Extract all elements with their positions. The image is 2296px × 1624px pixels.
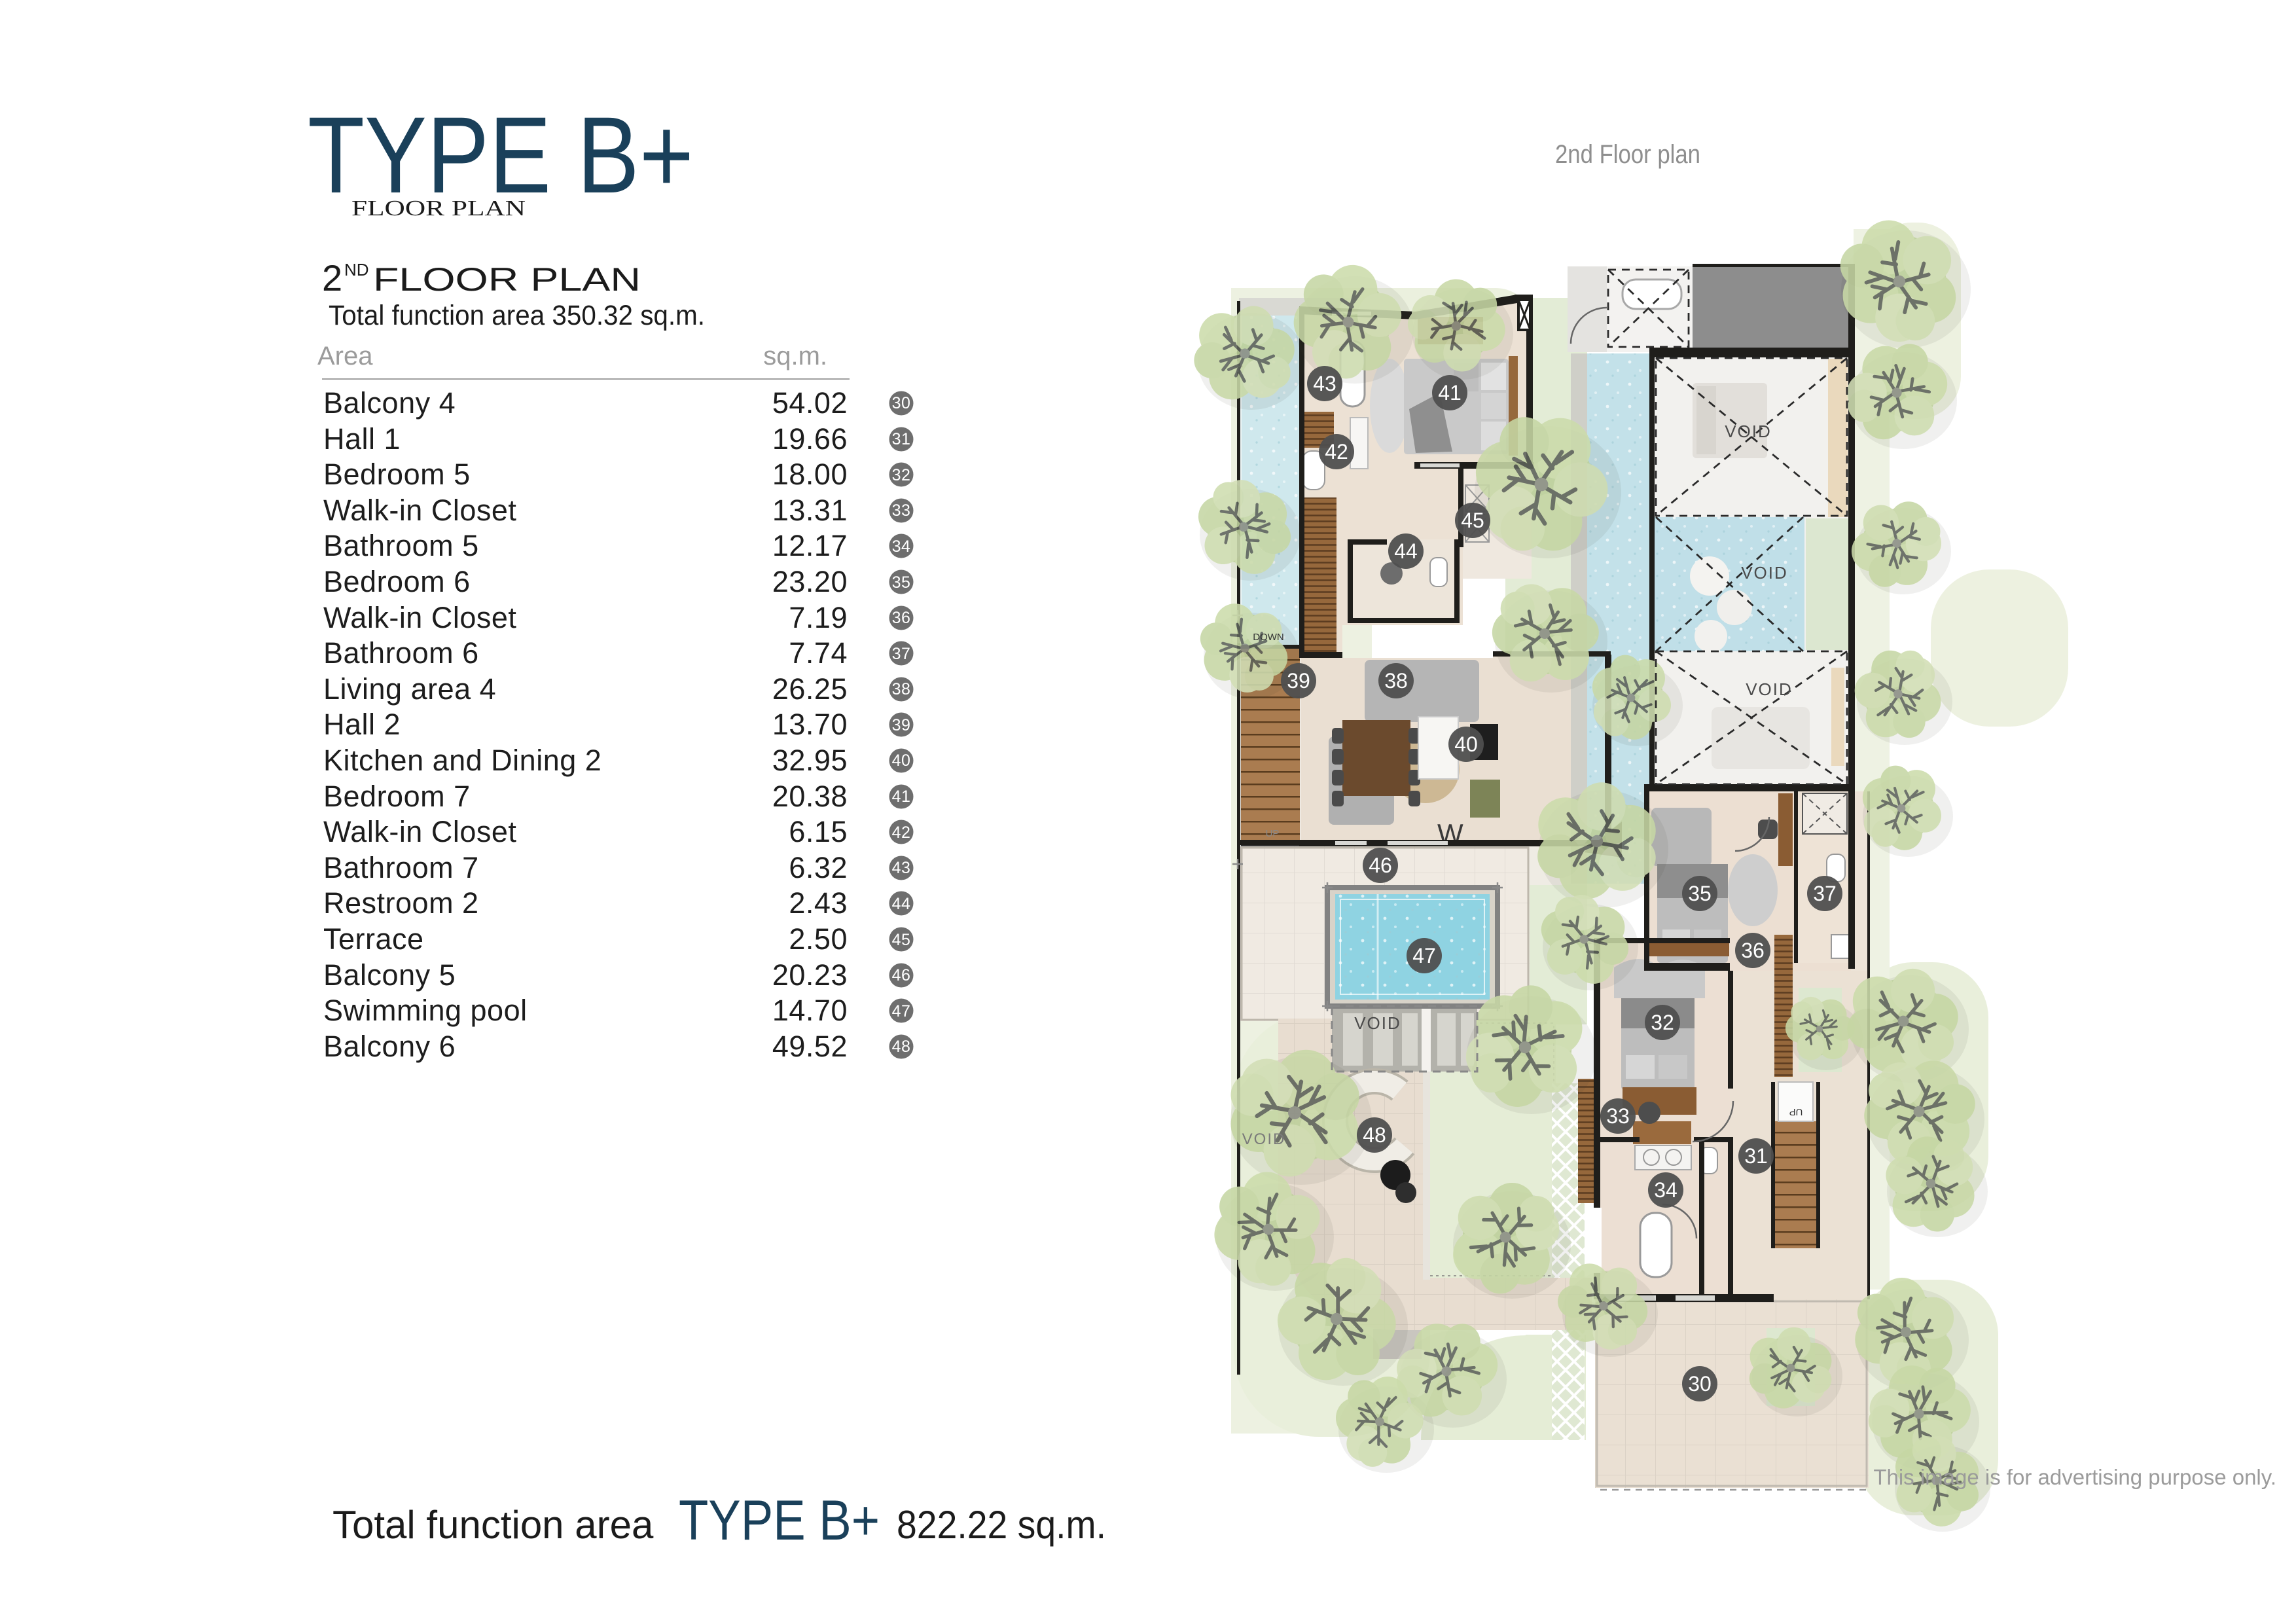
svg-text:37: 37 <box>1813 882 1837 905</box>
svg-text:32: 32 <box>1651 1011 1674 1034</box>
svg-text:20.23: 20.23 <box>772 958 848 992</box>
svg-text:30: 30 <box>1688 1372 1712 1396</box>
svg-text:Walk-in Closet: Walk-in Closet <box>323 815 516 848</box>
svg-text:45: 45 <box>1461 509 1484 532</box>
svg-text:30: 30 <box>892 394 911 412</box>
svg-text:33: 33 <box>1606 1104 1630 1128</box>
svg-text:Terrace: Terrace <box>323 922 424 956</box>
svg-text:14.70: 14.70 <box>772 994 848 1027</box>
svg-text:FLOOR PLAN: FLOOR PLAN <box>351 196 526 221</box>
svg-text:13.31: 13.31 <box>772 494 848 527</box>
svg-text:Area: Area <box>317 342 373 370</box>
svg-text:Bedroom 7: Bedroom 7 <box>323 780 471 813</box>
svg-text:UP: UP <box>1789 1106 1803 1117</box>
svg-text:VOID: VOID <box>1741 563 1788 583</box>
svg-text:VOID: VOID <box>1354 1013 1401 1033</box>
svg-text:19.66: 19.66 <box>772 422 848 456</box>
svg-text:47: 47 <box>892 1002 911 1020</box>
svg-text:Bathroom 7: Bathroom 7 <box>323 851 479 884</box>
svg-text:32.95: 32.95 <box>772 744 848 777</box>
svg-text:Total function area: Total function area <box>332 1503 654 1547</box>
svg-text:46: 46 <box>892 966 911 984</box>
svg-text:822.22 sq.m.: 822.22 sq.m. <box>897 1503 1106 1547</box>
svg-text:43: 43 <box>892 859 911 877</box>
svg-text:32: 32 <box>892 466 911 484</box>
svg-text:40: 40 <box>1454 732 1478 756</box>
svg-text:20.38: 20.38 <box>772 780 848 813</box>
svg-text:DOWN: DOWN <box>1253 632 1284 643</box>
svg-text:45: 45 <box>892 931 911 949</box>
svg-text:Bedroom 5: Bedroom 5 <box>323 458 471 491</box>
svg-text:2.50: 2.50 <box>789 922 848 956</box>
svg-text:TYPE B+: TYPE B+ <box>679 1489 880 1552</box>
svg-text:18.00: 18.00 <box>772 458 848 491</box>
svg-text:35: 35 <box>1688 882 1712 905</box>
svg-text:This image is for advertising: This image is for advertising purpose on… <box>1873 1465 2276 1489</box>
svg-text:2.43: 2.43 <box>789 886 848 920</box>
svg-text:VOID: VOID <box>1725 422 1772 441</box>
svg-text:VOID: VOID <box>1242 1130 1286 1148</box>
svg-text:Balcony 5: Balcony 5 <box>323 958 456 992</box>
svg-text:Bathroom 5: Bathroom 5 <box>323 529 479 562</box>
svg-text:Restroom 2: Restroom 2 <box>323 886 479 920</box>
svg-text:42: 42 <box>1325 440 1348 463</box>
svg-text:43: 43 <box>1313 372 1336 395</box>
svg-text:Walk-in Closet: Walk-in Closet <box>323 494 516 527</box>
svg-text:26.25: 26.25 <box>772 672 848 706</box>
svg-text:34: 34 <box>1654 1178 1677 1202</box>
svg-text:35: 35 <box>892 573 911 592</box>
svg-text:7.19: 7.19 <box>789 601 848 634</box>
svg-text:Balcony 4: Balcony 4 <box>323 386 456 420</box>
svg-text:42: 42 <box>892 823 911 842</box>
svg-text:36: 36 <box>892 609 911 627</box>
svg-text:48: 48 <box>1363 1123 1386 1147</box>
svg-text:38: 38 <box>1384 669 1408 693</box>
svg-text:48: 48 <box>892 1038 911 1056</box>
svg-text:UP: UP <box>1266 828 1280 839</box>
svg-text:46: 46 <box>1369 854 1392 877</box>
svg-text:Hall 2: Hall 2 <box>323 708 401 741</box>
svg-text:Swimming pool: Swimming pool <box>323 994 528 1027</box>
svg-text:Hall 1: Hall 1 <box>323 422 401 456</box>
svg-text:Living area 4: Living area 4 <box>323 672 496 706</box>
svg-text:38: 38 <box>892 680 911 698</box>
svg-text:6.32: 6.32 <box>789 851 848 884</box>
svg-text:23.20: 23.20 <box>772 565 848 598</box>
svg-text:2: 2 <box>322 257 342 298</box>
svg-text:37: 37 <box>892 645 911 663</box>
svg-text:13.70: 13.70 <box>772 708 848 741</box>
svg-text:7.74: 7.74 <box>789 636 848 670</box>
svg-text:ND: ND <box>344 260 369 280</box>
svg-text:6.15: 6.15 <box>789 815 848 848</box>
svg-text:31: 31 <box>892 430 911 448</box>
svg-text:Balcony 6: Balcony 6 <box>323 1030 456 1063</box>
svg-text:FLOOR PLAN: FLOOR PLAN <box>373 261 641 298</box>
svg-text:31: 31 <box>1744 1144 1768 1168</box>
svg-text:41: 41 <box>892 787 911 806</box>
svg-text:39: 39 <box>1287 669 1310 693</box>
svg-text:33: 33 <box>892 501 911 520</box>
svg-text:41: 41 <box>1438 381 1462 405</box>
svg-text:44: 44 <box>1394 539 1418 563</box>
svg-text:47: 47 <box>1412 944 1436 967</box>
svg-text:Total function area 350.32 sq.: Total function area 350.32 sq.m. <box>329 300 705 331</box>
svg-text:Kitchen and Dining 2: Kitchen and Dining 2 <box>323 744 601 777</box>
svg-text:2nd Floor plan: 2nd Floor plan <box>1555 140 1700 169</box>
svg-text:VOID: VOID <box>1746 679 1793 699</box>
svg-text:49.52: 49.52 <box>772 1030 848 1063</box>
svg-text:44: 44 <box>892 895 911 913</box>
svg-text:34: 34 <box>892 537 911 556</box>
svg-text:Bedroom 6: Bedroom 6 <box>323 565 471 598</box>
svg-text:Bathroom 6: Bathroom 6 <box>323 636 479 670</box>
svg-text:54.02: 54.02 <box>772 386 848 420</box>
svg-text:40: 40 <box>892 751 911 770</box>
svg-text:39: 39 <box>892 716 911 734</box>
svg-text:Walk-in Closet: Walk-in Closet <box>323 601 516 634</box>
svg-text:sq.m.: sq.m. <box>763 342 827 370</box>
svg-text:12.17: 12.17 <box>772 529 848 562</box>
svg-text:36: 36 <box>1741 939 1765 962</box>
